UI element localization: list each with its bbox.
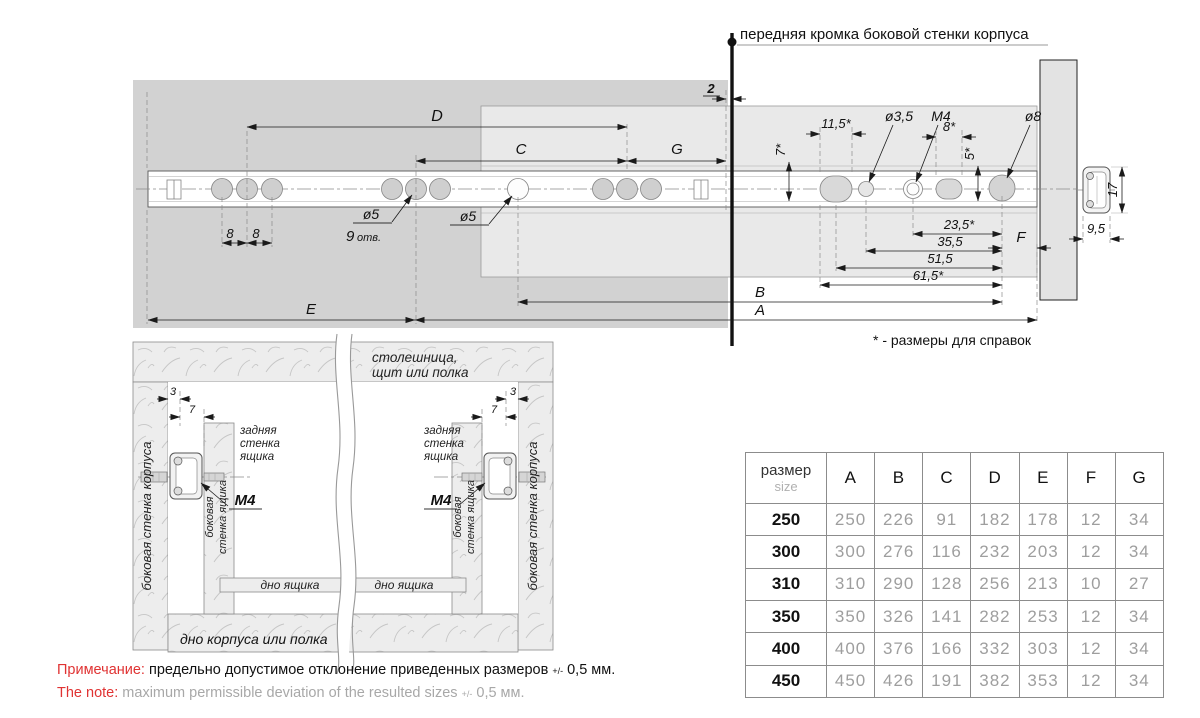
dim-7-left-label: 7 [189,404,196,416]
table-header-size: размер size [745,452,826,503]
cabinet-wall-left-label: боковая стенка корпуса [139,442,154,591]
cell: 256 [970,568,1018,600]
screw-left-inner [204,473,224,481]
dim-3-right-label: 3 [510,386,517,398]
d3-5-label: ø3,5 [885,108,913,124]
rear-wall-left-1: задняя [239,425,277,437]
dim-61-5-label: 61,5* [913,268,944,283]
cabinet-wall-right-label: боковая стенка корпуса [525,442,540,591]
dim-B-label: B [755,284,765,301]
dim-23-5-label: 23,5* [943,217,975,232]
cell: 34 [1115,632,1163,664]
drawer-wall-left-label-1: боковая [204,496,216,537]
cell: 426 [874,665,922,697]
d5-left-label: ø5 [363,206,380,222]
cell: 282 [970,600,1018,632]
notes-block: Примечание: предельно допустимое отклоне… [57,659,615,705]
cell: 141 [922,600,970,632]
front-edge-label: передняя кромка боковой стенки корпуса [740,26,1029,43]
table-header-B: B [874,452,922,503]
dim-51-5-label: 51,5 [927,251,953,266]
slot-11-5 [820,176,852,202]
cell: 382 [970,665,1018,697]
rear-wall-right-2: стенка [424,438,464,450]
holes-suffix: отв. [357,232,381,244]
dim-11-5-label: 11,5* [821,116,851,131]
drawer-wall-left-label-2: стенка ящика [217,480,229,554]
cell: 12 [1067,503,1115,535]
cell: 310 [826,568,874,600]
note-ru: Примечание: предельно допустимое отклоне… [57,659,615,682]
dim-8ref-label: 8* [943,119,956,134]
d8-label: ø8 [1025,108,1042,124]
table-header-G: G [1115,452,1163,503]
drawer-wall-right-label-1: боковая [452,496,464,537]
cell: 353 [1019,665,1067,697]
note-en-pm: +/- [462,689,473,699]
ball-bottom [1087,201,1094,208]
row-size: 400 [745,632,826,664]
cell: 34 [1115,503,1163,535]
cell: 34 [1115,665,1163,697]
table-header-A: A [826,452,874,503]
dim-D-label: D [431,108,443,125]
screw-right-inner [462,473,482,481]
cell: 400 [826,632,874,664]
dim-3-left-label: 3 [170,386,177,398]
cell: 12 [1067,665,1115,697]
dim-G-label: G [671,141,683,158]
dim-7ref-label: 7* [773,143,788,156]
size-table: размер size A B C D E F G 250 250 226 91… [745,452,1164,698]
row-size: 300 [745,535,826,567]
dim-5ref-label: 5* [962,147,977,160]
table-header-F: F [1067,452,1115,503]
cell: 350 [826,600,874,632]
dim-A-label: A [754,302,765,319]
row-size: 350 [745,600,826,632]
slide-top-view: передняя кромка боковой стенки корпуса 2… [133,26,1128,348]
cell: 12 [1067,600,1115,632]
drawer-slide-drawing-page: передняя кромка боковой стенки корпуса 2… [0,0,1200,718]
dim-C-label: C [516,141,527,158]
dim-8b-label: 8 [252,226,260,241]
cell: 128 [922,568,970,600]
note-en-label: The note: [57,685,118,701]
rear-wall-right-3: ящика [423,451,458,463]
row-size: 250 [745,503,826,535]
cell: 166 [922,632,970,664]
note-ru-label: Примечание: [57,662,145,678]
cell: 326 [874,600,922,632]
note-en-text: maximum permissible deviation of the res… [122,685,457,701]
d5-mid-label: ø5 [460,208,477,224]
hole-d5-callout [508,179,529,200]
cell: 116 [922,535,970,567]
dim-F-label: F [1016,229,1026,246]
note-ru-text: предельно допустимое отклонение приведен… [149,662,548,678]
drawer-wall-right-label-2: стенка ящика [465,480,477,554]
cell: 290 [874,568,922,600]
m4-left-label: M4 [235,492,256,509]
cell: 12 [1067,632,1115,664]
m4-right-label: M4 [431,492,452,509]
drawer-bottom-label-right: дно ящика [375,578,434,592]
dim-E-label: E [306,301,317,318]
table-header-razmer: размер [761,462,811,479]
drawer-bottom-label-left: дно ящика [261,578,320,592]
cell: 91 [922,503,970,535]
cell: 12 [1067,535,1115,567]
cell: 203 [1019,535,1067,567]
table-header-D: D [970,452,1018,503]
note-en: The note: maximum permissible deviation … [57,682,615,705]
rear-wall-left-2: стенка [240,438,280,450]
dim-9-5-label: 9,5 [1087,221,1106,236]
cell: 10 [1067,568,1115,600]
cell: 276 [874,535,922,567]
cell: 226 [874,503,922,535]
note-ru-suffix: 0,5 мм. [567,662,615,678]
note-en-suffix: 0,5 мм. [476,685,524,701]
rear-wall-right-1: задняя [423,425,461,437]
installation-section-view: 3 7 3 7 M4 M4 [133,334,553,674]
row-size: 310 [745,568,826,600]
ball-top [1087,173,1094,180]
table-header-size-en: size [774,479,797,494]
cell: 250 [826,503,874,535]
table-header-E: E [1019,452,1067,503]
row-size: 450 [745,665,826,697]
dim-2-label: 2 [706,81,715,96]
dim-35-5-label: 35,5 [937,234,963,249]
cell: 34 [1115,535,1163,567]
table-header-C: C [922,452,970,503]
front-panel-bar [1040,60,1077,300]
note-ru-pm: +/- [552,666,563,676]
reference-note: * - размеры для справок [873,332,1032,348]
dim-8a-label: 8 [226,226,234,241]
top-panel-label-2: щит или полка [372,365,469,380]
cell: 300 [826,535,874,567]
cell: 178 [1019,503,1067,535]
cell: 376 [874,632,922,664]
front-edge-dot [728,38,737,47]
holes-count: 9 [346,228,355,245]
cell: 213 [1019,568,1067,600]
dim-17-label: 17 [1105,182,1120,197]
cell: 253 [1019,600,1067,632]
cell: 332 [970,632,1018,664]
dim-7-right-label: 7 [491,404,498,416]
cell: 182 [970,503,1018,535]
cell: 232 [970,535,1018,567]
cell: 450 [826,665,874,697]
hole-d3-5 [859,182,874,197]
hole-m4-inner [907,183,919,195]
slot-8 [936,179,962,199]
cell: 34 [1115,600,1163,632]
cell: 191 [922,665,970,697]
cell: 303 [1019,632,1067,664]
top-panel-label-1: столешница, [372,350,457,365]
bottom-panel-label: дно корпуса или полка [180,631,328,647]
cell: 27 [1115,568,1163,600]
rear-wall-left-3: ящика [239,451,274,463]
